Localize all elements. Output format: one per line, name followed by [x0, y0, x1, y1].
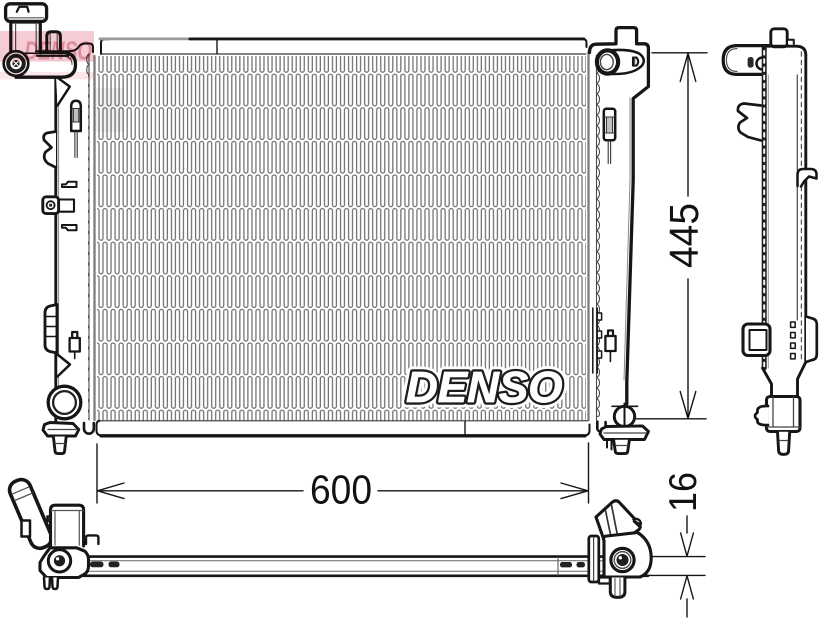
svg-text:445: 445 [661, 203, 707, 268]
svg-text:600: 600 [310, 467, 372, 513]
svg-text:DENSO: DENSO [406, 363, 562, 412]
svg-text:DENSO: DENSO [25, 36, 93, 66]
svg-text:16: 16 [662, 472, 705, 512]
